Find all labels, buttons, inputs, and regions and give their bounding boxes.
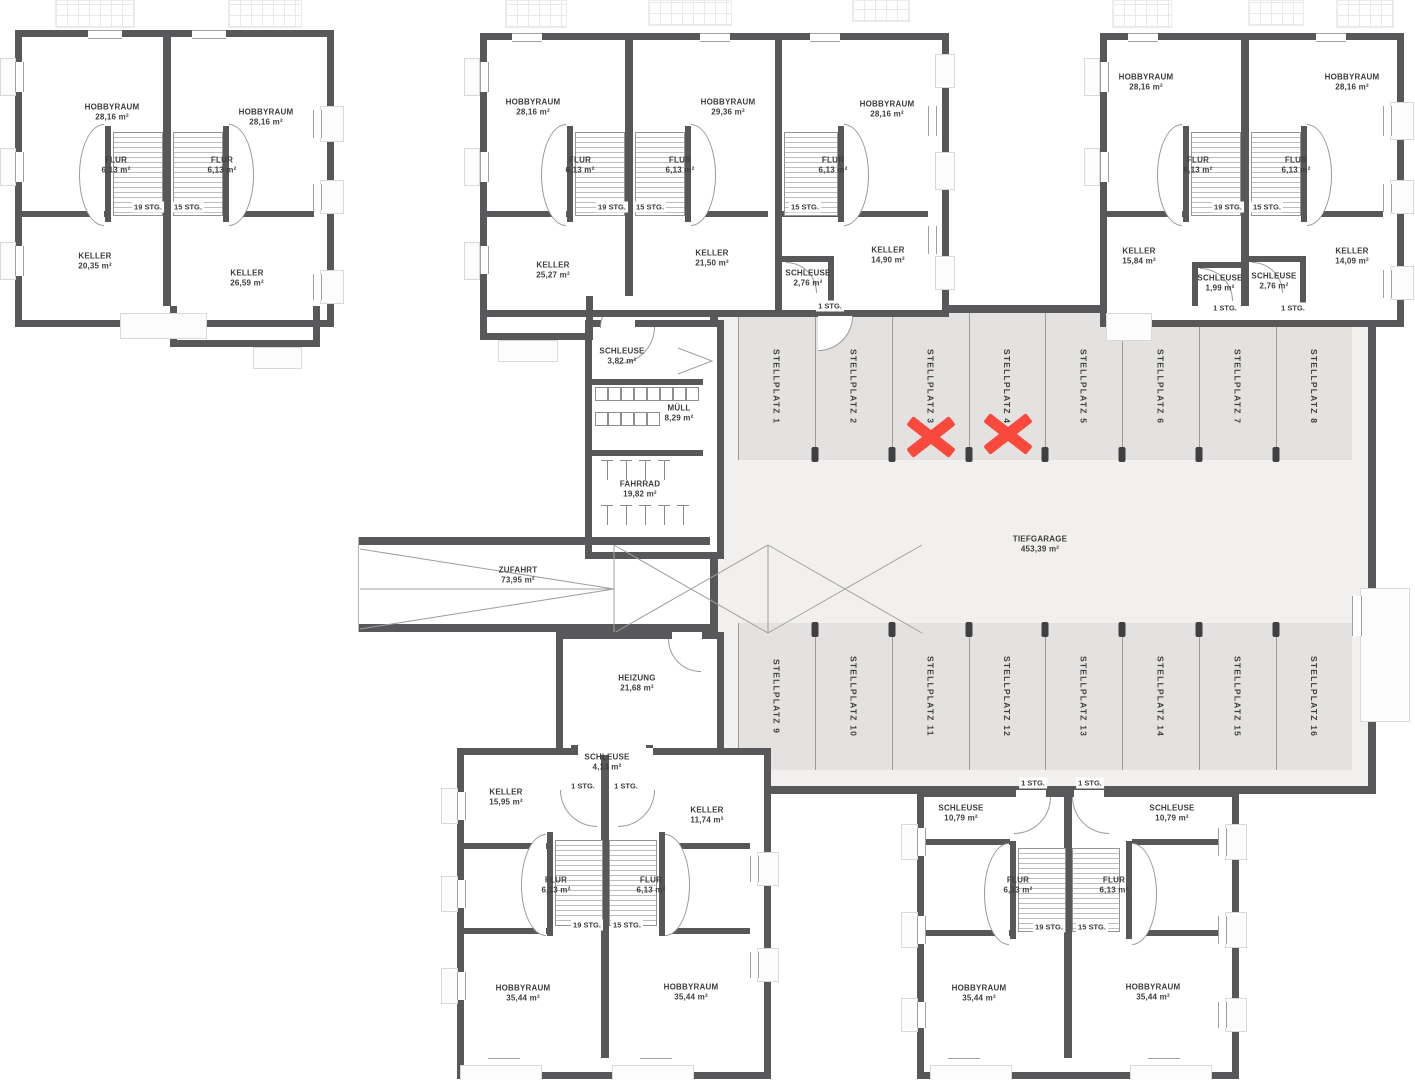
room-area: 35,44 m² <box>952 994 1007 1004</box>
waste-bin-icon <box>595 387 608 401</box>
stair-count-label: 15 STG. <box>172 202 204 213</box>
parking-stall-label: STELLPLATZ 12 <box>1002 656 1012 737</box>
waste-bin-icon <box>634 412 647 426</box>
room-area: 6,13 m² <box>666 166 695 176</box>
room-label-flur: FLUR6,13 m² <box>1184 156 1213 177</box>
room-label-heizung: HEIZUNG21,68 m² <box>618 674 655 695</box>
room-area: 6,13 m² <box>1100 886 1129 896</box>
party-wall <box>625 40 633 296</box>
parking-stall-label: STELLPLATZ 2 <box>849 349 859 424</box>
ramp-marking <box>358 543 934 635</box>
window <box>917 828 926 856</box>
room-name: SCHLEUSE <box>1251 272 1296 282</box>
room-label-hobbyraum: HOBBYRAUM35,44 m² <box>1126 983 1181 1004</box>
parking-stall-10[interactable]: STELLPLATZ 10 <box>815 623 892 770</box>
wall-segment <box>1249 256 1306 262</box>
window-sill <box>935 256 955 290</box>
wall-segment <box>1300 262 1306 306</box>
room-label-schleuse: SCHLEUSE4,13 m² <box>584 753 629 774</box>
window-sill <box>253 347 302 369</box>
room-label-schleuse: SCHLEUSE2,76 m² <box>1251 272 1296 293</box>
window <box>1100 152 1109 182</box>
window-sill <box>935 152 955 190</box>
parking-stall-16[interactable]: STELLPLATZ 16 <box>1276 623 1352 770</box>
room-name: KELLER <box>871 246 905 256</box>
room-label-keller: KELLER14,90 m² <box>871 246 905 267</box>
room-area: 8,29 m² <box>665 414 694 424</box>
window-sill <box>464 242 480 280</box>
room-label-keller: KELLER25,27 m² <box>536 261 570 282</box>
room-name: FLUR <box>102 156 131 166</box>
window-sill <box>901 912 918 948</box>
room-name: FLUR <box>666 156 695 166</box>
room-area: 6,13 m² <box>542 886 571 896</box>
room-name: KELLER <box>695 249 729 259</box>
room-area: 6,13 m² <box>1184 166 1213 176</box>
room-label-hobbyraum: HOBBYRAUM28,16 m² <box>85 103 140 124</box>
room-name: KELLER <box>1335 247 1369 257</box>
door-opening <box>1016 790 1046 797</box>
window <box>750 856 759 882</box>
window-sill <box>320 270 344 304</box>
window-sill <box>441 788 458 824</box>
window <box>15 152 24 182</box>
room-name: HOBBYRAUM <box>239 108 294 118</box>
window-sill <box>0 148 16 186</box>
room-label-hobbyraum: HOBBYRAUM29,36 m² <box>701 98 756 119</box>
room-area: 14,90 m² <box>871 256 905 266</box>
window <box>313 184 322 210</box>
room-label-flur: FLUR6,13 m² <box>637 876 666 897</box>
room-name: KELLER <box>536 261 570 271</box>
room-label-schleuse: SCHLEUSE2,76 m² <box>785 269 830 290</box>
stair-count-label: 19 STG. <box>1033 922 1065 933</box>
parking-stall-label: STELLPLATZ 9 <box>772 659 782 734</box>
room-name: FLUR <box>1184 156 1213 166</box>
window <box>1383 270 1392 298</box>
room-area: 4,13 m² <box>584 763 629 773</box>
room-area: 28,16 m² <box>85 113 140 123</box>
parking-stall-label: STELLPLATZ 11 <box>926 656 936 737</box>
window-sill <box>757 852 779 886</box>
room-area: 35,44 m² <box>664 993 719 1003</box>
room-label-hobbyraum: HOBBYRAUM35,44 m² <box>496 984 551 1005</box>
room-area: 6,13 m² <box>1282 166 1311 176</box>
window-sill <box>1225 912 1247 948</box>
bicycle-icon <box>638 503 652 527</box>
waste-bin-icon <box>647 412 660 426</box>
room-name: SCHLEUSE <box>785 269 830 279</box>
window-sill <box>464 58 480 96</box>
room-area: 6,13 m² <box>208 166 237 176</box>
parking-stall-label: STELLPLATZ 1 <box>772 349 782 424</box>
stair-count-label: 19 STG. <box>132 202 164 213</box>
room-area: 6,13 m² <box>102 166 131 176</box>
wall-opening <box>177 306 313 313</box>
window <box>15 62 24 92</box>
room-name: HOBBYRAUM <box>1126 983 1181 993</box>
window-sill <box>0 58 16 96</box>
bicycle-icon <box>600 503 614 527</box>
room-label-flur: FLUR6,13 m² <box>208 156 237 177</box>
room-area: 453,39 m² <box>1013 545 1067 555</box>
stair-count-label: 15 STG. <box>634 202 666 213</box>
bicycle-icon <box>619 458 633 482</box>
parking-stall-14[interactable]: STELLPLATZ 14 <box>1122 623 1199 770</box>
parking-stall-1[interactable]: STELLPLATZ 1 <box>738 313 815 460</box>
room-name: KELLER <box>78 252 112 262</box>
room-area: 73,95 m² <box>499 576 538 586</box>
parking-stall-15[interactable]: STELLPLATZ 15 <box>1199 623 1276 770</box>
room-label-tiefgarage: TIEFGARAGE453,39 m² <box>1013 535 1067 556</box>
window <box>917 916 926 944</box>
waste-bin-icon <box>608 412 621 426</box>
wall-segment <box>665 928 750 934</box>
room-name: SCHLEUSE <box>1149 804 1194 814</box>
window <box>1218 828 1227 856</box>
waste-bin-icon <box>634 387 647 401</box>
window-sill <box>1390 180 1414 214</box>
wall-segment <box>586 296 593 340</box>
stair-count-label: 1 STG. <box>1019 778 1047 789</box>
room-area: 20,35 m² <box>78 262 112 272</box>
window-sill <box>901 998 918 1032</box>
window <box>15 246 24 276</box>
window <box>1383 184 1392 212</box>
window <box>928 106 937 136</box>
red-cross-marker-stellplatz-3 <box>907 415 955 459</box>
room-label-fahrrad: FAHRRAD19,82 m² <box>620 480 661 501</box>
waste-bin-icon <box>621 387 634 401</box>
window-sill <box>120 313 207 339</box>
stair-count-label: 19 STG. <box>571 920 603 931</box>
room-area: 15,95 m² <box>489 798 523 808</box>
room-label-schleuse: SCHLEUSE10,79 m² <box>1149 804 1194 825</box>
room-name: FLUR <box>1004 876 1033 886</box>
window-sill <box>1106 313 1152 341</box>
bicycle-icon <box>657 503 671 527</box>
parking-stall-label: STELLPLATZ 13 <box>1079 656 1089 737</box>
room-name: MÜLL <box>665 404 694 414</box>
room-name: HOBBYRAUM <box>664 983 719 993</box>
room-label-hobbyraum: HOBBYRAUM28,16 m² <box>1325 73 1380 94</box>
room-label-hobbyraum: HOBBYRAUM28,16 m² <box>860 100 915 121</box>
roof-grid-overlay <box>852 0 910 22</box>
room-label-flur: FLUR6,13 m² <box>819 156 848 177</box>
window-sill <box>612 1065 694 1080</box>
room-name: HEIZUNG <box>618 674 655 684</box>
window-sill <box>1084 58 1100 96</box>
room-area: 21,68 m² <box>618 684 655 694</box>
window <box>192 30 226 39</box>
room-area: 26,59 m² <box>230 279 264 289</box>
room-name: HOBBYRAUM <box>1119 73 1174 83</box>
window-sill <box>441 876 458 912</box>
room-name: FLUR <box>637 876 666 886</box>
door-opening <box>672 632 702 639</box>
wall-segment <box>480 333 593 340</box>
room-name: KELLER <box>230 269 264 279</box>
stair-count-label: 15 STG. <box>1251 202 1283 213</box>
room-name: HOBBYRAUM <box>701 98 756 108</box>
room-area: 28,16 m² <box>239 118 294 128</box>
waste-bin-icon <box>595 412 608 426</box>
stair-count-label: 1 STG. <box>1076 778 1104 789</box>
room-area: 6,13 m² <box>566 166 595 176</box>
room-area: 35,44 m² <box>496 994 551 1004</box>
window-sill <box>464 148 480 186</box>
room-label-flur: FLUR6,13 m² <box>1004 876 1033 897</box>
stair-count-label: 1 STG. <box>816 301 844 312</box>
room-area: 28,16 m² <box>1119 83 1174 93</box>
room-area: 6,13 m² <box>637 886 666 896</box>
window <box>457 880 466 908</box>
window-sill <box>1130 1065 1212 1080</box>
room-label-hobbyraum: HOBBYRAUM28,16 m² <box>239 108 294 129</box>
wall-segment <box>592 450 703 456</box>
window <box>1316 33 1346 42</box>
parking-stall-7[interactable]: STELLPLATZ 7 <box>1199 313 1276 460</box>
roof-grid-overlay <box>228 0 302 28</box>
room-label-hobbyraum: HOBBYRAUM35,44 m² <box>664 983 719 1004</box>
room-area: 21,50 m² <box>695 259 729 269</box>
room-name: FLUR <box>819 156 848 166</box>
parking-stall-11[interactable]: STELLPLATZ 11 <box>892 623 969 770</box>
room-label-schleuse: SCHLEUSE3,82 m² <box>599 347 644 368</box>
room-name: FLUR <box>208 156 237 166</box>
room-name: FLUR <box>566 156 595 166</box>
room-area: 6,13 m² <box>1004 886 1033 896</box>
window <box>480 246 489 274</box>
roof-grid-overlay <box>55 0 135 28</box>
waste-bin-icon <box>621 412 634 426</box>
room-area: 28,16 m² <box>506 108 561 118</box>
window <box>810 33 840 42</box>
bicycle-icon <box>600 458 614 482</box>
wall-segment <box>592 379 703 385</box>
room-area: 15,84 m² <box>1122 257 1156 267</box>
room-name: SCHLEUSE <box>584 753 629 763</box>
room-name: SCHLEUSE <box>599 347 644 357</box>
room-area: 25,27 m² <box>536 271 570 281</box>
parking-stall-label: STELLPLATZ 10 <box>849 656 859 737</box>
room-label-muell: MÜLL8,29 m² <box>665 404 694 425</box>
room-area: 1,99 m² <box>1197 284 1242 294</box>
parking-stall-13[interactable]: STELLPLATZ 13 <box>1045 623 1122 770</box>
window <box>1218 916 1227 944</box>
roof-grid-overlay <box>505 0 567 28</box>
room-label-keller: KELLER11,74 m² <box>690 806 723 827</box>
stair-count-label: 1 STG. <box>612 781 640 792</box>
wall-opening <box>487 296 586 303</box>
room-area: 6,13 m² <box>819 166 848 176</box>
room-area: 28,16 m² <box>860 110 915 120</box>
window-sill <box>930 1065 1012 1080</box>
room-name: HOBBYRAUM <box>952 984 1007 994</box>
waste-bin-icon <box>660 387 673 401</box>
stair-count-label: 15 STG. <box>1076 922 1108 933</box>
bicycle-icon <box>619 503 633 527</box>
window <box>1383 106 1392 136</box>
stair-count-label: 1 STG. <box>1211 303 1239 314</box>
window <box>480 62 489 92</box>
window <box>88 30 122 39</box>
window <box>313 110 322 138</box>
stair-count-label: 19 STG. <box>596 202 628 213</box>
room-area: 29,36 m² <box>701 108 756 118</box>
room-label-zufahrt: ZUFAHRT73,95 m² <box>499 566 538 587</box>
window-sill <box>460 1065 542 1080</box>
window-sill <box>320 106 344 142</box>
window-sill <box>320 180 344 214</box>
ramp-marking <box>676 346 716 376</box>
room-name: FLUR <box>542 876 571 886</box>
room-name: HOBBYRAUM <box>1325 73 1380 83</box>
room-area: 14,09 m² <box>1335 257 1369 267</box>
window <box>457 972 466 1000</box>
parking-stall-label: STELLPLATZ 14 <box>1156 656 1166 737</box>
window-sill <box>0 242 16 280</box>
room-label-flur: FLUR6,13 m² <box>566 156 595 177</box>
window-sill <box>498 340 558 362</box>
stair-count-label: 15 STG. <box>611 920 643 931</box>
parking-stall-8[interactable]: STELLPLATZ 8 <box>1276 313 1352 460</box>
window-sill <box>935 54 955 88</box>
red-cross-marker-stellplatz-4 <box>984 412 1032 456</box>
window <box>512 33 542 42</box>
window-sill <box>757 948 779 982</box>
room-area: 2,76 m² <box>785 279 830 289</box>
room-name: KELLER <box>690 806 723 816</box>
window <box>1352 596 1362 636</box>
stair-count-label: 19 STG. <box>1212 202 1244 213</box>
roof-grid-overlay <box>1248 0 1304 26</box>
stair-count-label: 1 STG. <box>569 781 597 792</box>
room-name: HOBBYRAUM <box>496 984 551 994</box>
room-name: HOBBYRAUM <box>85 103 140 113</box>
room-name: FLUR <box>1282 156 1311 166</box>
window <box>928 226 937 254</box>
room-area: 10,79 m² <box>1149 814 1194 824</box>
room-name: HOBBYRAUM <box>506 98 561 108</box>
party-wall <box>1241 40 1249 306</box>
room-label-hobbyraum: HOBBYRAUM35,44 m² <box>952 984 1007 1005</box>
party-wall <box>163 37 171 306</box>
parking-stall-label: STELLPLATZ 5 <box>1079 349 1089 424</box>
parking-stall-label: STELLPLATZ 8 <box>1309 349 1319 424</box>
room-name: KELLER <box>1122 247 1156 257</box>
room-name: FLUR <box>1100 876 1129 886</box>
window-sill <box>441 968 458 1004</box>
room-name: SCHLEUSE <box>938 804 983 814</box>
waste-bin-icon <box>647 387 660 401</box>
window <box>917 1002 926 1028</box>
bicycle-icon <box>676 503 690 527</box>
window <box>313 274 322 300</box>
room-area: 28,16 m² <box>1325 83 1380 93</box>
wall-segment <box>1132 839 1218 845</box>
waste-bin-icon <box>673 387 686 401</box>
roof-grid-overlay <box>1336 0 1394 28</box>
stair-count-label: 15 STG. <box>789 202 821 213</box>
room-name: ZUFAHRT <box>499 566 538 576</box>
window-sill <box>901 824 918 860</box>
window-sill <box>1360 588 1410 722</box>
window <box>700 33 730 42</box>
parking-stall-label: STELLPLATZ 6 <box>1156 349 1166 424</box>
room-area: 3,82 m² <box>599 357 644 367</box>
room-label-flur: FLUR6,13 m² <box>1100 876 1129 897</box>
room-label-keller: KELLER21,50 m² <box>695 249 729 270</box>
door-opening <box>1074 790 1104 797</box>
wall-segment <box>924 839 1010 845</box>
window-sill <box>1225 824 1247 860</box>
room-label-keller: KELLER14,09 m² <box>1335 247 1369 268</box>
room-area: 11,74 m² <box>690 816 723 826</box>
window <box>1218 1002 1227 1028</box>
room-area: 2,76 m² <box>1251 282 1296 292</box>
window-sill <box>1225 998 1247 1032</box>
room-label-keller: KELLER20,35 m² <box>78 252 112 273</box>
window <box>480 152 489 182</box>
bicycle-icon <box>638 458 652 482</box>
wall-segment <box>782 256 834 262</box>
parking-stall-label: STELLPLATZ 16 <box>1309 656 1319 737</box>
room-label-keller: KELLER15,84 m² <box>1122 247 1156 268</box>
floor-plan-canvas: STELLPLATZ 1 STELLPLATZ 2 STELLPLATZ 3 S… <box>0 0 1415 1080</box>
window <box>457 792 466 820</box>
roof-grid-overlay <box>648 0 732 26</box>
window <box>750 952 759 978</box>
room-name: FAHRRAD <box>620 480 661 490</box>
room-label-flur: FLUR6,13 m² <box>1282 156 1311 177</box>
room-label-hobbyraum: HOBBYRAUM28,16 m² <box>1119 73 1174 94</box>
room-name: SCHLEUSE <box>1197 274 1242 284</box>
room-area: 10,79 m² <box>938 814 983 824</box>
waste-bin-icon <box>686 387 699 401</box>
room-label-keller: KELLER26,59 m² <box>230 269 264 290</box>
room-label-keller: KELLER15,95 m² <box>489 788 523 809</box>
stair-count-label: 1 STG. <box>1279 303 1307 314</box>
roof-grid-overlay <box>1112 0 1172 28</box>
window <box>1128 33 1158 42</box>
room-name: KELLER <box>489 788 523 798</box>
room-name: HOBBYRAUM <box>860 100 915 110</box>
window-sill <box>1390 266 1414 300</box>
parking-stall-label: STELLPLATZ 7 <box>1233 349 1243 424</box>
room-label-flur: FLUR6,13 m² <box>542 876 571 897</box>
parking-stall-12[interactable]: STELLPLATZ 12 <box>969 623 1045 770</box>
parking-stall-label: STELLPLATZ 15 <box>1233 656 1243 737</box>
room-label-flur: FLUR6,13 m² <box>666 156 695 177</box>
room-label-schleuse: SCHLEUSE1,99 m² <box>1197 274 1242 295</box>
room-label-flur: FLUR6,13 m² <box>102 156 131 177</box>
waste-bin-icon <box>608 387 621 401</box>
window <box>1100 62 1109 92</box>
window-sill <box>1084 148 1100 186</box>
room-area: 19,82 m² <box>620 490 661 500</box>
room-label-hobbyraum: HOBBYRAUM28,16 m² <box>506 98 561 119</box>
bicycle-icon <box>657 458 671 482</box>
room-area: 35,44 m² <box>1126 993 1181 1003</box>
window-sill <box>1390 102 1414 140</box>
wall-segment <box>170 340 320 347</box>
room-label-schleuse: SCHLEUSE10,79 m² <box>938 804 983 825</box>
parking-stall-label: STELLPLATZ 3 <box>926 349 936 424</box>
room-name: TIEFGARAGE <box>1013 535 1067 545</box>
